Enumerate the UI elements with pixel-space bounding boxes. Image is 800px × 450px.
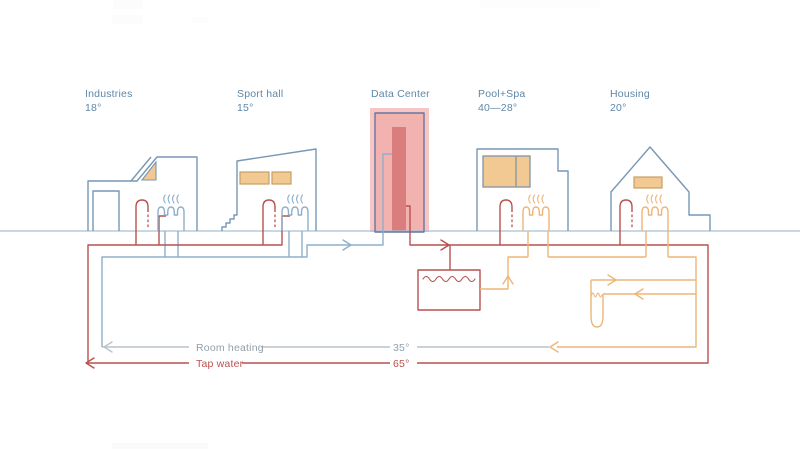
heat-exchanger-coil: [423, 277, 475, 282]
diagram-svg: Industries 18° Sport hall 15° Data Cente…: [0, 0, 800, 450]
building-temp: 15°: [237, 102, 253, 114]
radiator-icon: [523, 207, 549, 231]
building-label: Industries: [85, 88, 133, 100]
heat-waves-icon: [288, 195, 303, 203]
orange-return-line: [557, 257, 696, 347]
faint-artifact: [112, 15, 143, 24]
faint-artifact: [113, 0, 143, 9]
building-sport-hall: [222, 149, 316, 231]
low-temp-circuit: [480, 231, 696, 352]
room-heating-label: Room heating: [196, 342, 264, 354]
heat-waves-icon: [164, 195, 179, 203]
industries-door: [93, 191, 119, 231]
building-label: Sport hall: [237, 88, 283, 100]
orange-supply-line: [480, 257, 528, 289]
tap-icon: [500, 200, 512, 245]
radiator-pipes: [528, 231, 668, 257]
radiator-icon: [282, 207, 308, 231]
heat-exchanger-box: [418, 270, 480, 310]
faint-artifact: [112, 443, 208, 449]
pool-icon: [483, 156, 530, 187]
ground-loop-lines: [591, 280, 696, 294]
housing-outline: [611, 147, 710, 231]
building-label: Data Center: [371, 88, 430, 100]
heat-transfer-squiggle-icon: [592, 293, 602, 297]
tap-icon: [136, 200, 148, 245]
building-label: Pool+Spa: [478, 88, 525, 100]
sport-hall-window: [240, 172, 269, 184]
data-center-fill: [370, 108, 429, 232]
flow-arrow-left-icon: [550, 342, 558, 352]
radiator-icon: [158, 207, 184, 231]
tap-icon: [620, 200, 632, 245]
radiator-icon: [642, 207, 668, 231]
ground-loop-icon: [591, 280, 603, 327]
district-heating-diagram: Industries 18° Sport hall 15° Data Cente…: [0, 0, 800, 450]
server-rack-bar: [392, 127, 406, 232]
tap-water-temp: 65°: [393, 358, 409, 370]
sport-hall-outline: [222, 149, 316, 231]
sport-hall-window: [272, 172, 291, 184]
building-label: Housing: [610, 88, 650, 100]
heat-exchanger-icon: [418, 270, 480, 310]
heat-waves-icon: [647, 195, 662, 203]
building-temp: 18°: [85, 102, 101, 114]
faint-artifact: [480, 0, 600, 8]
building-industries: [88, 157, 197, 231]
heat-waves-icon: [529, 195, 544, 203]
tap-water-return-line: [88, 216, 390, 363]
building-housing: [611, 147, 710, 231]
pipe-labels: Room heating 35° Tap water 65°: [196, 342, 409, 370]
building-temp: 40—28°: [478, 102, 517, 114]
housing-window: [634, 177, 662, 188]
building-labels: Industries 18° Sport hall 15° Data Cente…: [85, 88, 650, 114]
tap-water-label: Tap water: [196, 358, 244, 370]
faint-artifact: [192, 17, 208, 23]
faint-artifacts: [112, 0, 600, 449]
tap-icon: [263, 200, 275, 245]
room-heating-circuit: [102, 154, 549, 352]
tap-water-hot-line: [406, 206, 708, 363]
building-temp: 20°: [610, 102, 626, 114]
room-heating-temp: 35°: [393, 342, 409, 354]
